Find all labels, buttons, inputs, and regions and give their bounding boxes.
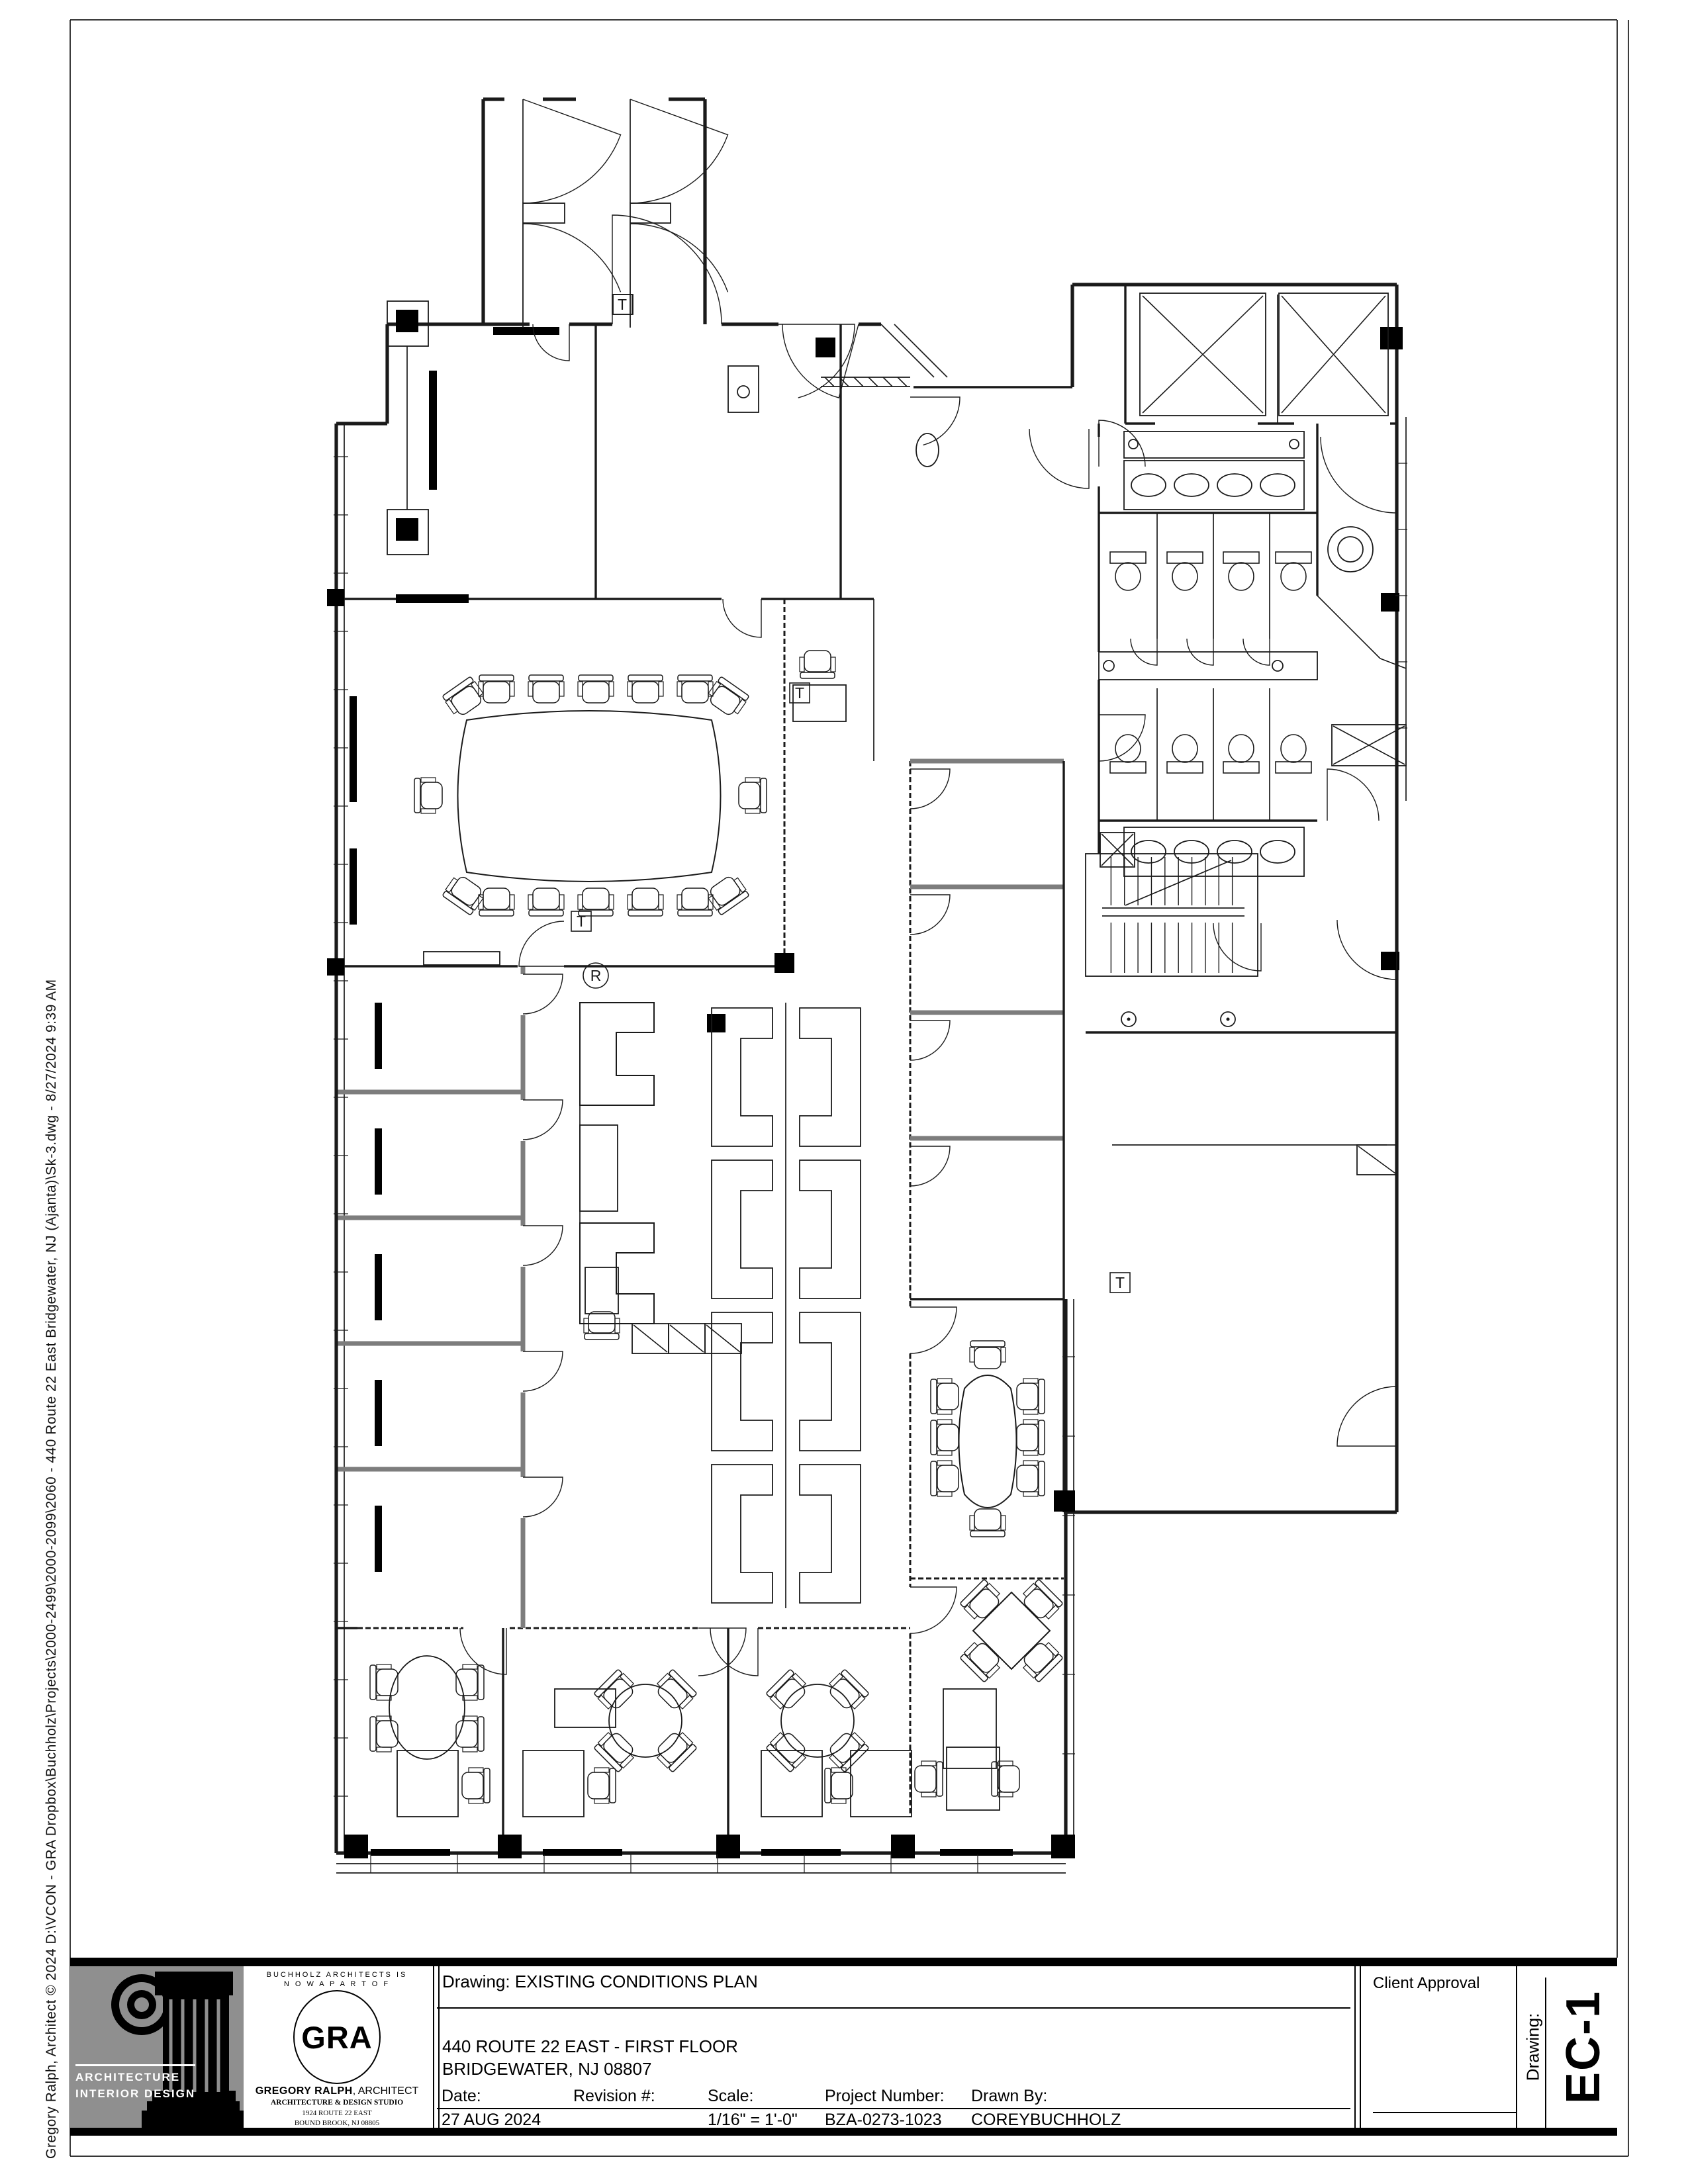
scale-label: Scale: [708,2087,753,2106]
firm-services-panel: ARCHITECTURE INTERIOR DESIGN [70,1966,244,2128]
client-approval-box: Client Approval [1364,1966,1516,2128]
svg-text:R: R [590,967,602,984]
drawing-label: Drawing: [442,1972,510,1991]
drawn-by-label: Drawn By: [971,2087,1047,2106]
merger-line2: N O W A P A R T O F [244,1979,430,1989]
plan-chairs [370,651,1064,1803]
firm-studio: ARCHITECTURE & DESIGN STUDIO [244,2099,430,2107]
client-approval-label: Client Approval [1373,1974,1479,1993]
merger-line1: BUCHHOLZ ARCHITECTS IS [244,1970,430,1979]
svg-text:T: T [577,913,586,930]
services-line-architecture: ARCHITECTURE [75,2064,195,2085]
plan-sinks-and-tables [389,386,1373,1759]
project-number-label: Project Number: [825,2087,945,2106]
firm-address2: BOUND BROOK, NJ 08805 [244,2118,430,2128]
services-line-interior: INTERIOR DESIGN [75,2085,195,2102]
titleblock-fields: Drawing: EXISTING CONDITIONS PLAN 440 RO… [430,1966,1354,2128]
titleblock-top-rule [70,1958,1617,1966]
sheet-label-rule [1545,1978,1546,2128]
plot-stamp-text: Gregory Ralph, Architect © 2024 D:\VCON … [44,979,60,2159]
plan-walls-interior [336,285,1397,1853]
plan-window-mullions [334,457,1407,1873]
drawing-title-row: Drawing: EXISTING CONDITIONS PLAN [442,1972,758,1992]
plan-annotations: TTTTR [571,295,1130,1293]
titleblock-divider [1516,1966,1517,2128]
sheet-number: EC-1 [1556,1990,1611,2104]
scale-value: 1/16" = 1'-0" [708,2111,798,2130]
signature-line [1373,2112,1516,2113]
ionic-column-graphic [70,1966,244,2128]
titleblock-divider [1354,1966,1356,2128]
svg-text:T: T [795,684,804,702]
drawn-by-value: COREYBUCHHOLZ [971,2111,1121,2130]
project-address: 440 ROUTE 22 EAST - FIRST FLOOR BRIDGEWA… [442,2035,738,2080]
revision-label: Revision #: [573,2087,655,2106]
field-rule [437,2007,1350,2009]
svg-text:T: T [1115,1274,1125,1291]
titleblock-bottom-rule [70,2128,1617,2136]
project-number-value: BZA-0273-1023 [825,2111,942,2130]
plan-diagonal-marks [633,296,1406,1352]
plan-furniture-paths [458,711,1051,1669]
drawing-sheet: TTTTR Gregory Ralph, Architect © 2024 D:… [0,0,1688,2184]
drawing-title: EXISTING CONDITIONS PLAN [515,1972,758,1991]
sheet-number-label: Drawing: [1523,2013,1544,2081]
floor-plan-drawing: TTTTR [0,0,1688,2184]
date-label: Date: [442,2087,481,2106]
firm-address1: 1924 ROUTE 22 EAST [244,2109,430,2118]
plan-stair-treads [1111,857,1232,973]
plan-column-fills [327,310,1403,1858]
firm-name: GREGORY RALPH, ARCHITECT [244,2085,430,2097]
firm-identity-panel: BUCHHOLZ ARCHITECTS IS N O W A P A R T O… [244,1966,430,2128]
date-value: 27 AUG 2024 [442,2111,541,2130]
svg-text:T: T [618,296,627,313]
field-rule [437,2108,1350,2109]
titleblock-divider [1360,1966,1361,2128]
gra-logo: GRA [293,1990,381,2084]
